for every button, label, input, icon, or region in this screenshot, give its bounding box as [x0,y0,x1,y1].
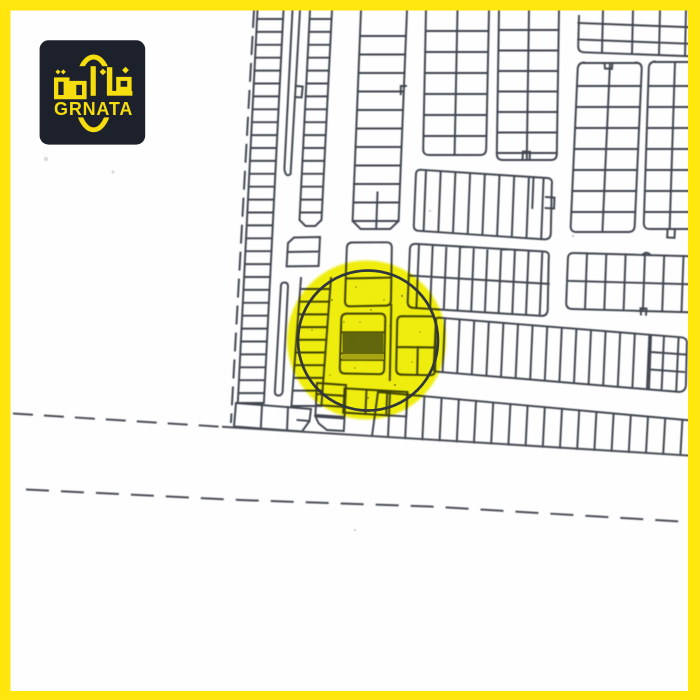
svg-text:GRNATA: GRNATA [54,99,133,119]
